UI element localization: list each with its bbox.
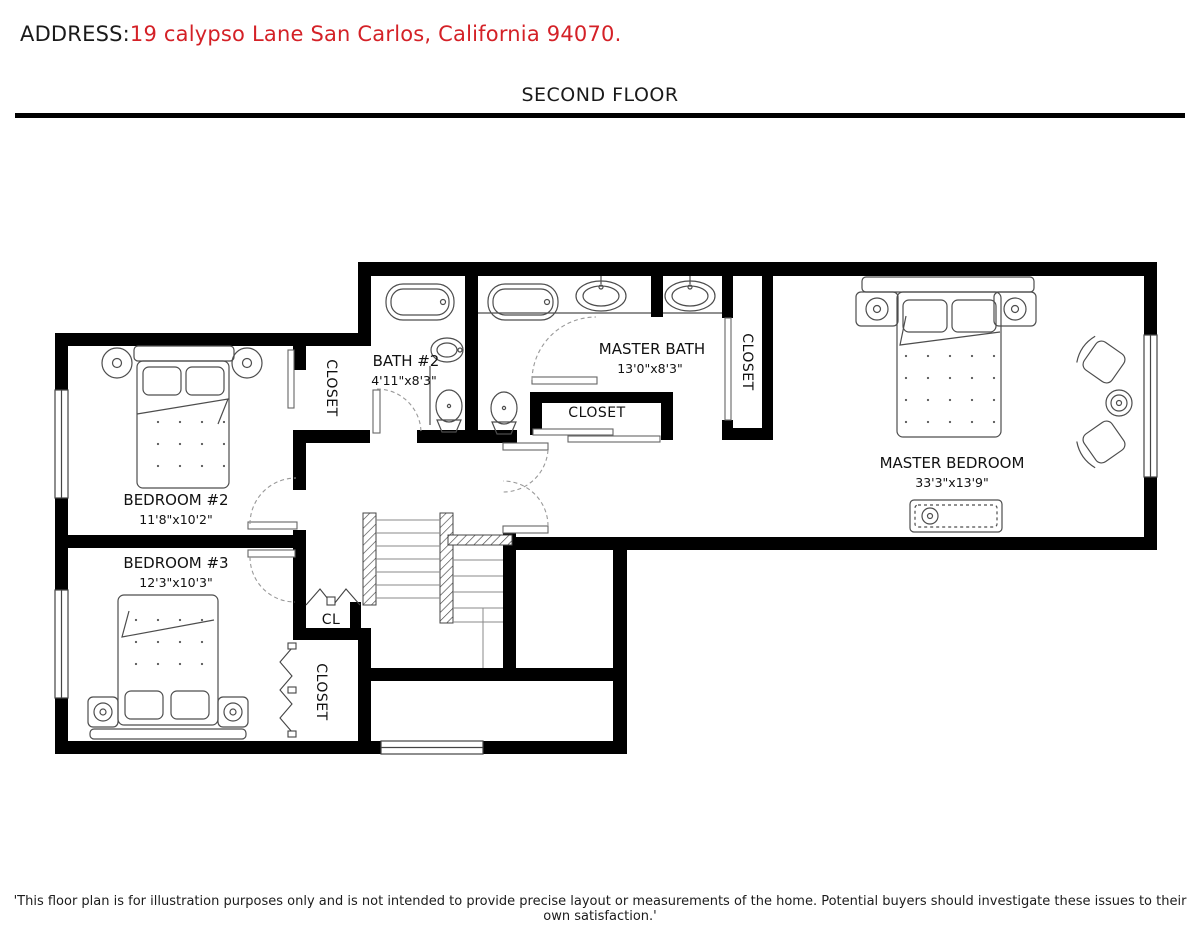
bedroom2-label: BEDROOM #2 [123,491,228,509]
hall-double-door-top [503,443,548,492]
master-bedroom-bed [856,277,1036,437]
bedroom2-closet-label: CLOSET [323,359,339,416]
bedroom3-dims: 12'3"x10'3" [139,575,213,590]
hall-closet-label: CLOSET [568,405,625,421]
bedroom2-window [55,390,68,498]
floor-plan-page: ADDRESS:19 calypso Lane San Carlos, Cali… [0,0,1200,927]
bedroom2-bed [102,346,262,488]
master-bedroom-dims: 33'3"x13'9" [915,475,989,490]
hall-window [381,741,483,754]
hall-closet-sliding-doors [533,429,660,442]
bedroom3-bed [88,595,248,739]
bedroom3-window [55,590,68,698]
bedroom3-closet-label: CLOSET [313,663,329,720]
master-closet-label: CLOSET [739,333,755,390]
hall-double-door-bottom [503,481,548,533]
master-bedroom-chairs [1073,333,1132,470]
bath2-dims: 4'11"x8'3" [371,373,437,388]
disclaimer-text: 'This floor plan is for illustration pur… [0,894,1200,924]
bedroom3-door [248,550,295,602]
master-closet-sliding-door [725,318,731,420]
bedroom3-label: BEDROOM #3 [123,554,228,572]
bath2-door [373,389,421,433]
bedroom3-closet-bifold-door [280,643,296,737]
floor-plan-drawing: BEDROOM #2 11'8"x10'2" BEDROOM #3 12'3"x… [0,0,1200,927]
bedroom2-door [248,478,297,529]
master-bedroom-label: MASTER BEDROOM [880,454,1025,472]
bedroom2-dims: 11'8"x10'2" [139,512,213,527]
master-bedroom-window [1144,335,1157,477]
master-bedroom-bench [910,500,1002,532]
master-bath-door [532,317,597,384]
master-bath-label: MASTER BATH [599,340,705,358]
staircase [363,513,512,668]
master-bath-dims: 13'0"x8'3" [617,361,683,376]
cl-closet-label: CL [322,612,341,628]
bath2-label: BATH #2 [373,352,440,370]
bedroom2-closet-sliding-door [288,350,294,408]
